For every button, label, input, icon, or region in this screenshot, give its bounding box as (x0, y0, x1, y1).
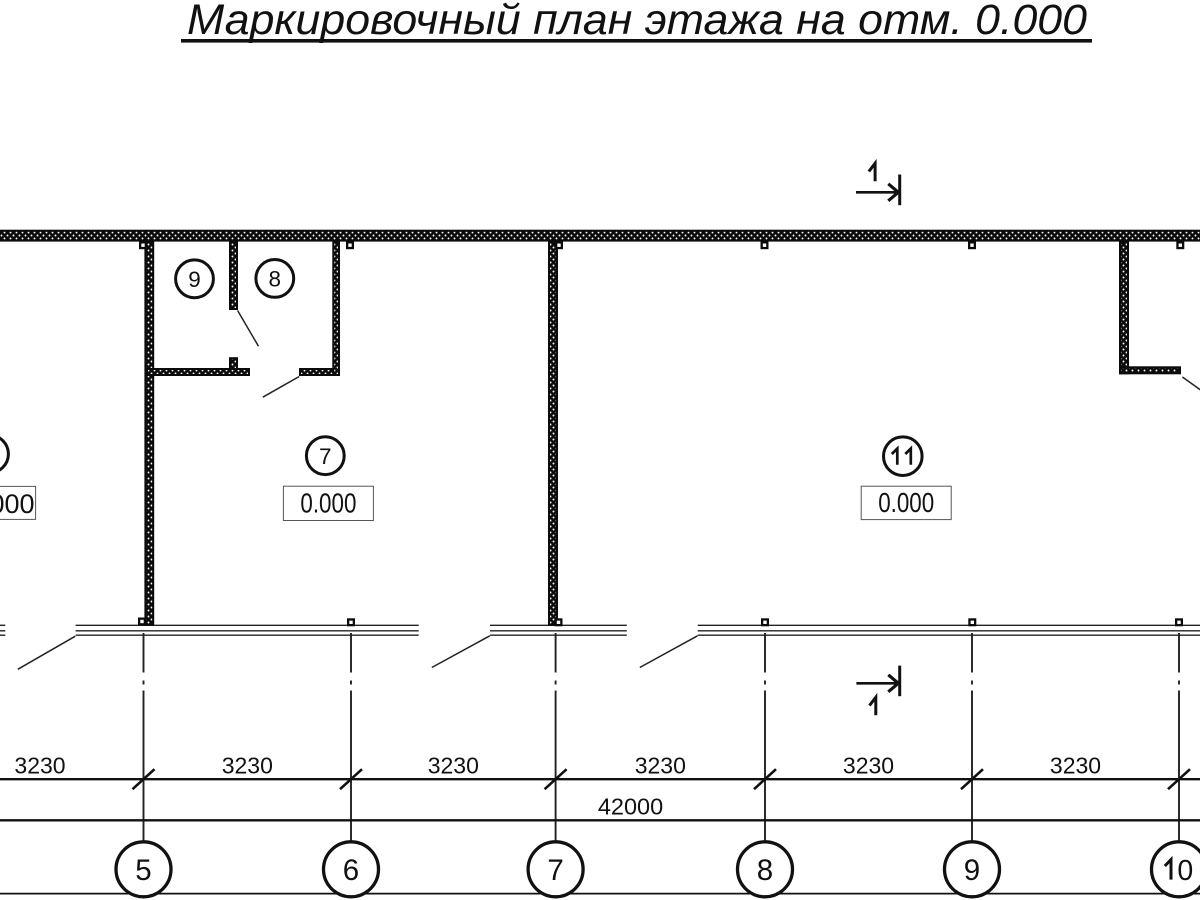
svg-text:7: 7 (319, 444, 332, 469)
svg-text:9: 9 (964, 854, 980, 887)
svg-text:0.000: 0.000 (300, 488, 356, 519)
svg-text:3230: 3230 (14, 753, 65, 779)
svg-text:Маркировочный план этажа на от: Маркировочный план этажа на отм. 0.000 (187, 0, 1087, 44)
svg-text:5: 5 (135, 854, 151, 887)
svg-text:6: 6 (343, 854, 359, 887)
svg-text:9: 9 (188, 267, 201, 292)
svg-text:7: 7 (547, 854, 563, 887)
svg-text:0: 0 (1177, 855, 1193, 887)
svg-text:8: 8 (757, 854, 773, 887)
svg-text:3230: 3230 (222, 753, 273, 779)
svg-text:42000: 42000 (598, 794, 663, 820)
svg-text:8: 8 (269, 267, 282, 292)
svg-text:3230: 3230 (428, 753, 479, 779)
svg-text:3230: 3230 (635, 753, 686, 779)
svg-text:3230: 3230 (1050, 753, 1101, 779)
svg-text:0.000: 0.000 (878, 487, 934, 518)
svg-text:0.000: 0.000 (0, 489, 34, 519)
svg-text:3230: 3230 (843, 753, 894, 779)
